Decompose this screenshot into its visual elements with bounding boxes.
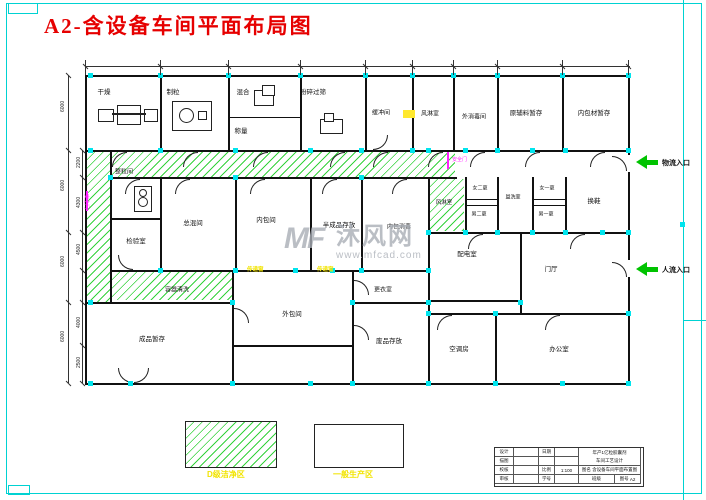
dimension-label: 4000 <box>76 317 82 328</box>
dimension-extension-line <box>365 60 366 75</box>
tb-class-label: 班级 <box>579 475 615 484</box>
room-label: 混合 <box>237 86 250 96</box>
dimension-label: 6000 <box>60 180 66 191</box>
room-label: 空调房 <box>449 343 469 353</box>
wall <box>565 177 567 234</box>
logistics-entrance-arrow <box>636 155 658 169</box>
arrow-head-icon <box>636 155 647 169</box>
room-label: 制粒 <box>167 86 180 96</box>
door-arc <box>612 262 627 277</box>
wall <box>532 199 565 200</box>
room-label: 男二更 <box>471 211 486 218</box>
safety-door-top <box>447 152 449 169</box>
room-label: 外包间 <box>282 308 302 318</box>
safety-door-left-label: 安全门 <box>83 194 90 209</box>
room-label: 更衣室 <box>374 285 392 294</box>
grip-marker[interactable] <box>88 381 93 386</box>
door-arc <box>234 308 249 323</box>
grip-marker[interactable] <box>158 268 163 273</box>
room-label: 外消毒间 <box>462 112 486 121</box>
door-arc <box>354 280 369 295</box>
wall <box>85 150 630 152</box>
tb-scale-label: 比例 <box>539 466 555 475</box>
dimension-line-left-outer <box>68 75 69 383</box>
wall <box>495 313 628 315</box>
door-arc <box>468 234 483 249</box>
grip-marker[interactable] <box>293 268 298 273</box>
tb-project-title: 年产1亿粒胶囊剂 车间工艺设计 <box>579 448 641 466</box>
wall <box>228 75 230 152</box>
grip-marker[interactable] <box>495 148 500 153</box>
tb-drawing-name-value: 含设备车间平面布置图 <box>592 467 637 473</box>
drawing-sheet: A2-含设备车间平面布局图 干燥制粒混合称量粉碎过筛缓冲间风淋室外消毒间原辅料暂… <box>0 0 706 500</box>
tb-studentno-label: 学号 <box>539 475 555 484</box>
grip-marker[interactable] <box>350 300 355 305</box>
room-label: 女二更 <box>472 185 487 192</box>
transfer-window-label: 传递窗 <box>317 265 334 273</box>
dimension-label: 6000 <box>60 101 66 112</box>
wall <box>532 205 565 206</box>
dimension-label: 2200 <box>76 157 82 168</box>
wall <box>160 177 162 272</box>
wall <box>497 75 499 152</box>
tb-drawing-number: 图号 A2 <box>615 475 641 484</box>
room-label: 内包材暂存 <box>578 107 611 117</box>
room-label: 内包间 <box>256 214 276 224</box>
grip-marker[interactable] <box>626 148 631 153</box>
grip-marker[interactable] <box>230 381 235 386</box>
door-arc <box>612 156 627 171</box>
wall <box>628 75 630 155</box>
grip-marker[interactable] <box>359 148 364 153</box>
tb-blank <box>514 475 539 484</box>
door-arc <box>250 179 265 194</box>
grip-marker[interactable] <box>350 381 355 386</box>
room-label: 缓冲间 <box>372 108 390 117</box>
grip-marker[interactable] <box>88 73 93 78</box>
grip-marker[interactable] <box>626 311 631 316</box>
wall <box>453 75 455 152</box>
wall <box>352 302 430 304</box>
grip-marker[interactable] <box>518 300 523 305</box>
arrow-bar <box>647 267 658 272</box>
tb-blank <box>514 466 539 475</box>
grip-marker[interactable] <box>560 381 565 386</box>
wall <box>428 300 522 302</box>
room-label: 干燥 <box>98 86 111 96</box>
tb-approver-label: 审核 <box>495 475 514 484</box>
dimension-extension-line <box>453 60 454 75</box>
grip-marker[interactable] <box>158 148 163 153</box>
tb-blank <box>555 457 579 466</box>
wall <box>465 205 497 206</box>
grip-marker[interactable] <box>626 230 631 235</box>
room-label: 检验室 <box>126 235 146 245</box>
room-label: 原辅料暂存 <box>510 107 543 117</box>
door-arc <box>175 179 190 194</box>
tb-checker-label: 校核 <box>495 466 514 475</box>
grip-marker[interactable] <box>563 148 568 153</box>
dimension-extension-line <box>562 60 563 75</box>
grip-marker[interactable] <box>308 381 313 386</box>
room-label: 门厅 <box>545 263 558 273</box>
room-label: 风淋室 <box>421 109 439 118</box>
title-block: 设计 日期 年产1亿粒胶囊剂 车间工艺设计 描图 校核 比例 1:100 图名 … <box>494 447 644 487</box>
tb-blank <box>539 457 555 466</box>
grip-marker[interactable] <box>463 148 468 153</box>
transfer-window-label: 传递窗 <box>247 265 264 273</box>
dimension-label: 4500 <box>76 244 82 255</box>
dimension-extension-line <box>300 60 301 75</box>
grip-marker[interactable] <box>426 148 431 153</box>
room-label: 女一更 <box>539 185 554 192</box>
wall <box>85 75 87 385</box>
wall <box>428 313 495 315</box>
dimension-label: 6000 <box>60 331 66 342</box>
room-label: 换鞋 <box>588 195 601 205</box>
room-label: 盥洗室 <box>505 194 520 201</box>
grip-marker[interactable] <box>410 148 415 153</box>
wall <box>365 75 367 152</box>
door-arc <box>525 152 540 167</box>
wall <box>628 172 630 260</box>
grip-marker[interactable] <box>493 311 498 316</box>
tb-date-label: 日期 <box>539 448 555 457</box>
door-arc <box>570 234 585 249</box>
grip-marker[interactable] <box>626 381 631 386</box>
wall <box>495 313 497 383</box>
door-arc <box>118 255 133 270</box>
tb-designer-label: 设计 <box>495 448 514 457</box>
dimension-extension-line <box>628 60 629 75</box>
grip-marker[interactable] <box>359 175 364 180</box>
grip-marker[interactable] <box>426 311 431 316</box>
legend-clean-area-label: D级洁净区 <box>207 469 245 480</box>
clean-area-hatch <box>87 152 110 302</box>
door-arc <box>470 152 485 167</box>
grip-marker[interactable] <box>88 148 93 153</box>
dimension-label: 6000 <box>60 256 66 267</box>
tb-drawing-name: 图名 含设备车间平面布置图 <box>579 466 641 475</box>
tb-project-line2: 车间工艺设计 <box>596 457 623 464</box>
people-entrance-label: 人流入口 <box>662 265 690 275</box>
wall <box>235 177 237 272</box>
wall <box>232 345 354 347</box>
legend-clean-area-swatch <box>185 421 277 468</box>
grip-marker[interactable] <box>128 381 133 386</box>
wall <box>112 218 160 220</box>
legend-general-area-swatch <box>314 424 404 468</box>
grip-marker[interactable] <box>233 148 238 153</box>
tb-tracer-label: 描图 <box>495 457 514 466</box>
room-label: 粉碎过筛 <box>300 86 326 96</box>
tb-drawing-number-label: 图号 <box>620 476 629 482</box>
wall <box>497 177 499 234</box>
watermark: MF 沐风网 www.mfcad.com <box>284 224 444 261</box>
tb-drawing-number-value: A2 <box>630 477 636 482</box>
watermark-brand: 沐风网 <box>336 224 444 250</box>
door-arc <box>322 179 337 194</box>
clean-area-hatch <box>110 152 455 177</box>
watermark-url: www.mfcad.com <box>336 250 444 261</box>
grip-marker[interactable] <box>88 300 93 305</box>
dimension-extension-line <box>497 60 498 75</box>
dimension-extension-line <box>85 60 86 75</box>
dimension-label: 2500 <box>76 357 82 368</box>
wall <box>85 75 630 77</box>
grip-marker[interactable] <box>530 148 535 153</box>
grip-marker[interactable] <box>495 230 500 235</box>
grip-marker[interactable] <box>233 268 238 273</box>
wall <box>160 75 162 152</box>
grip-marker[interactable] <box>308 148 313 153</box>
dimension-line-top <box>85 66 630 67</box>
wall <box>562 75 564 152</box>
room-label: 办公室 <box>549 343 569 353</box>
room-label: 配电室 <box>457 248 477 258</box>
dimension-extension-line <box>412 60 413 75</box>
room-label: 风淋室 <box>436 198 453 206</box>
grip-marker[interactable] <box>359 268 364 273</box>
door-arc <box>545 315 560 330</box>
arrow-head-icon <box>636 262 647 276</box>
room-label: 废品存放 <box>376 335 402 345</box>
people-entrance-arrow <box>636 262 658 276</box>
grip-marker[interactable] <box>233 175 238 180</box>
tb-blank <box>555 475 579 484</box>
highlighted-door-marker <box>403 110 415 118</box>
tb-blank <box>514 448 539 457</box>
grip-marker[interactable] <box>563 230 568 235</box>
legend-general-area-label: 一般生产区 <box>333 469 373 480</box>
dimension-extension-line <box>160 60 161 75</box>
grip-marker[interactable] <box>426 381 431 386</box>
wall <box>228 117 302 118</box>
watermark-logo: MF <box>284 224 323 254</box>
wall <box>232 270 234 383</box>
tb-scale-value: 1:100 <box>555 466 579 475</box>
wall <box>465 199 497 200</box>
tb-drawing-name-label: 图名 <box>582 467 591 473</box>
wall <box>85 302 234 304</box>
grip-marker[interactable] <box>530 230 535 235</box>
grip-marker[interactable] <box>493 381 498 386</box>
grip-marker[interactable] <box>463 230 468 235</box>
dimension-extension-line <box>228 60 229 75</box>
wall <box>110 150 112 304</box>
room-label: 容器清洗 <box>165 285 189 294</box>
dimension-line-left-inner <box>82 150 83 383</box>
door-arc <box>392 179 407 194</box>
grip-marker[interactable] <box>426 300 431 305</box>
room-label: 成品暂存 <box>139 333 165 343</box>
arrow-bar <box>647 160 658 165</box>
door-arc <box>354 325 369 340</box>
grip-marker[interactable] <box>600 230 605 235</box>
door-arc <box>437 315 452 330</box>
dimension-label: 4300 <box>76 197 82 208</box>
tb-project-line1: 年产1亿粒胶囊剂 <box>592 449 626 456</box>
room-label: 整粒间 <box>115 167 133 176</box>
door-arc <box>373 135 388 150</box>
door-arc <box>590 152 605 167</box>
logistics-entrance-label: 物流入口 <box>662 158 690 168</box>
room-label: 男一更 <box>538 211 553 218</box>
tb-blank <box>555 448 579 457</box>
wall <box>85 383 630 385</box>
wall <box>628 277 630 385</box>
grip-marker[interactable] <box>230 300 235 305</box>
door-arc <box>134 368 149 383</box>
room-label: 总混间 <box>183 217 203 227</box>
tb-blank <box>514 457 539 466</box>
grip-marker[interactable] <box>108 175 113 180</box>
safety-door-top-label: 安全门 <box>452 156 467 163</box>
grip-marker[interactable] <box>426 268 431 273</box>
room-label: 称量 <box>235 125 248 135</box>
